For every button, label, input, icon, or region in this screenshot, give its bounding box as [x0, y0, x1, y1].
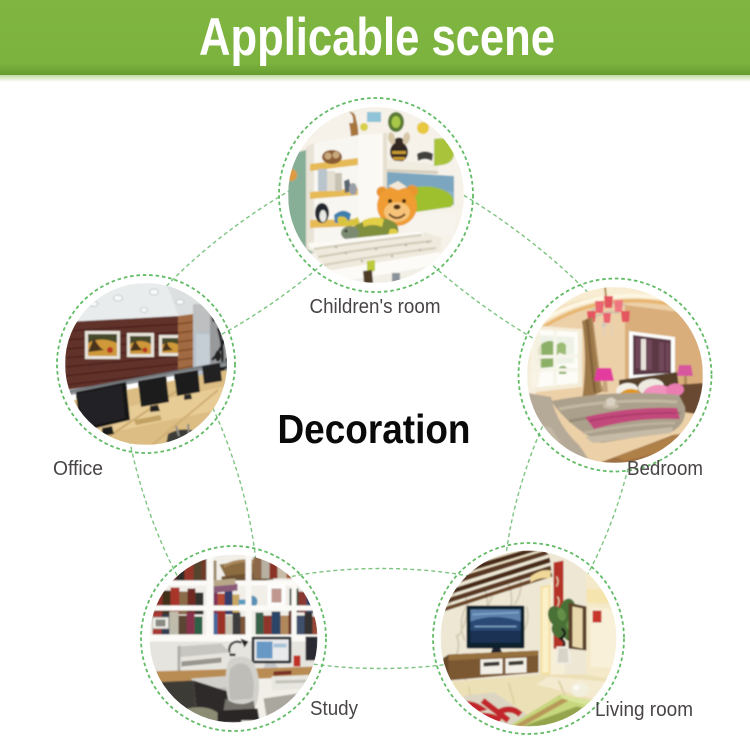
svg-text:Applicable scene: Applicable scene	[199, 8, 555, 67]
svg-text:Decoration: Decoration	[278, 406, 471, 452]
svg-text:Children's room: Children's room	[310, 295, 441, 318]
svg-text:Study: Study	[310, 697, 359, 720]
svg-text:Living room: Living room	[595, 698, 693, 721]
svg-text:Bedroom: Bedroom	[627, 457, 703, 480]
svg-text:Office: Office	[53, 457, 103, 480]
